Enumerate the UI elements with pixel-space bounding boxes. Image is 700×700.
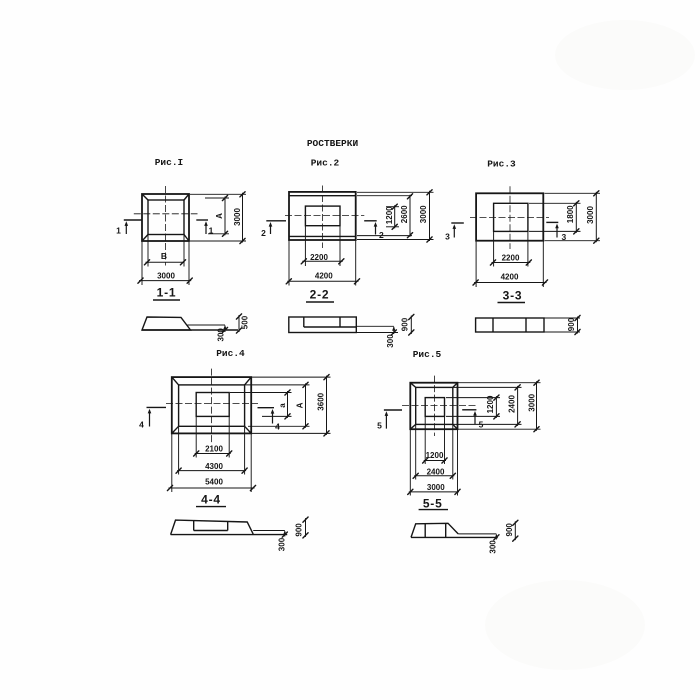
svg-text:900: 900 (294, 523, 303, 537)
svg-text:РОСТВЕРКИ: РОСТВЕРКИ (307, 138, 359, 149)
svg-text:1800: 1800 (566, 205, 575, 223)
svg-text:1: 1 (116, 226, 121, 236)
svg-text:2400: 2400 (507, 395, 516, 413)
svg-text:В: В (161, 251, 167, 261)
svg-text:А: А (215, 213, 224, 219)
svg-text:300: 300 (488, 540, 497, 554)
svg-text:Рис.3: Рис.3 (487, 158, 516, 169)
svg-text:4200: 4200 (501, 272, 519, 281)
svg-text:3000: 3000 (427, 483, 445, 492)
svg-text:5: 5 (377, 420, 382, 430)
svg-text:3000: 3000 (157, 271, 175, 280)
svg-text:300: 300 (386, 334, 395, 348)
svg-text:Рис.4: Рис.4 (216, 348, 245, 359)
svg-text:300: 300 (277, 537, 286, 551)
svg-text:3600: 3600 (316, 392, 325, 410)
svg-text:2-2: 2-2 (310, 288, 330, 302)
svg-text:А: А (295, 402, 304, 408)
svg-text:1200: 1200 (385, 206, 394, 224)
svg-text:3000: 3000 (527, 393, 536, 411)
svg-text:1200: 1200 (426, 451, 444, 460)
svg-text:900: 900 (400, 317, 409, 331)
svg-text:4300: 4300 (205, 462, 223, 471)
svg-text:5-5: 5-5 (423, 497, 443, 511)
svg-text:4200: 4200 (315, 271, 333, 280)
svg-text:900: 900 (567, 317, 576, 331)
svg-text:4-4: 4-4 (201, 493, 221, 507)
svg-text:3-3: 3-3 (503, 289, 523, 303)
svg-text:2100: 2100 (205, 444, 223, 453)
svg-text:3000: 3000 (586, 206, 595, 224)
svg-text:2400: 2400 (427, 467, 445, 476)
svg-text:500: 500 (240, 315, 249, 329)
svg-text:Рис.I: Рис.I (155, 157, 184, 168)
svg-text:4: 4 (139, 419, 144, 429)
svg-text:а: а (278, 403, 287, 408)
svg-text:2: 2 (379, 230, 384, 240)
svg-text:2200: 2200 (310, 253, 328, 262)
svg-text:5400: 5400 (205, 478, 223, 487)
svg-text:900: 900 (505, 523, 514, 537)
svg-text:2200: 2200 (502, 253, 520, 262)
svg-text:2: 2 (261, 228, 266, 238)
svg-text:1200: 1200 (486, 395, 495, 413)
svg-text:Рис.2: Рис.2 (311, 157, 340, 168)
svg-text:2600: 2600 (400, 205, 409, 223)
svg-text:3000: 3000 (233, 208, 242, 226)
svg-text:300: 300 (216, 328, 225, 342)
svg-text:3000: 3000 (419, 205, 428, 223)
svg-text:1-1: 1-1 (157, 286, 177, 300)
svg-text:3: 3 (445, 231, 450, 241)
svg-text:Рис.5: Рис.5 (413, 349, 442, 360)
